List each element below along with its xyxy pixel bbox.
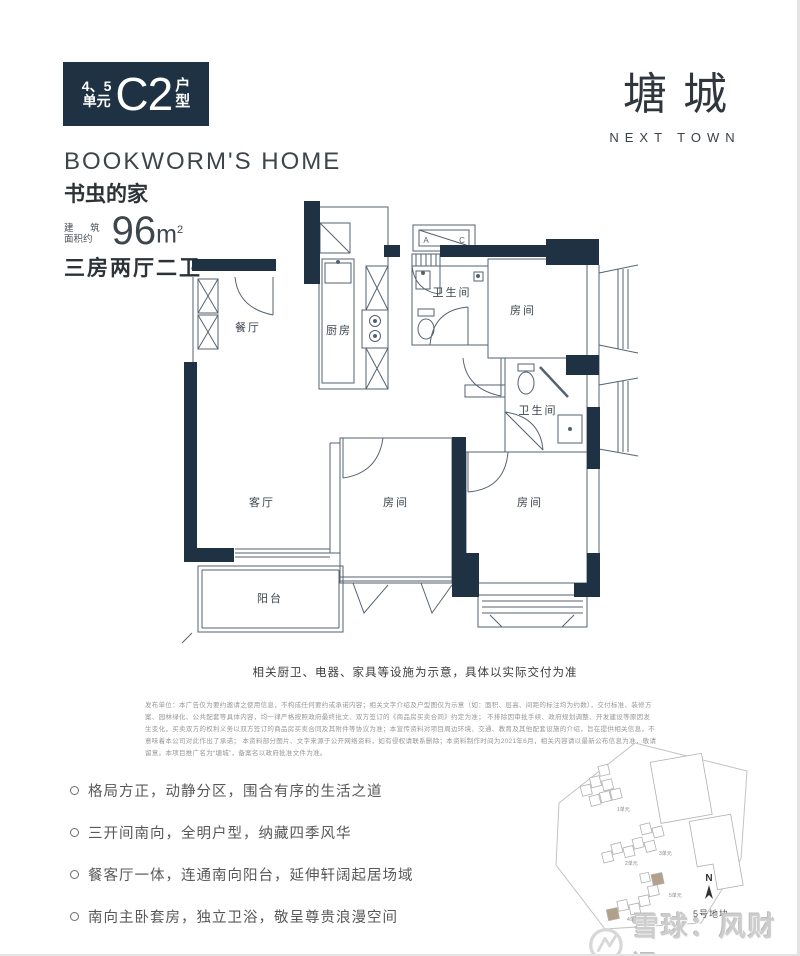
unit-label: 5单元 (669, 892, 682, 899)
snowball-logo-icon (586, 921, 626, 956)
plan-walls (184, 201, 600, 597)
area-label-1: 建 筑 (64, 223, 107, 234)
feature-item: 餐客厅一体，连通南向阳台，延伸轩阔起居场域 (70, 864, 414, 885)
room-label-balcony: 阳台 (257, 591, 283, 605)
feature-item: 三开间南向，全明户型，纳藏四季风华 (70, 822, 414, 843)
unit-number: 4、5 单元 (82, 79, 112, 109)
plan-type-bottom: 型 (175, 94, 190, 110)
ac-label-c: C (459, 236, 465, 245)
unit-label: 1单元 (617, 806, 630, 813)
north-label: N (705, 873, 712, 884)
plan-type-top: 户 (175, 78, 190, 94)
plan-caption: 相关厨卫、电器、家具等设施为示意，具体以实际交付为准 (170, 664, 660, 680)
area-label-2: 面积约 (64, 234, 107, 245)
brand-logo: 塘城 NEXT TOWN (580, 58, 770, 145)
feature-item: 格局方正，动静分区，围合有序的生活之道 (70, 780, 414, 801)
bullet-circle-icon (70, 912, 79, 921)
feature-text: 三开间南向，全明户型，纳藏四季风华 (88, 822, 352, 843)
plan-type-chars: 户 型 (175, 78, 190, 110)
headline-cn: 书虫的家 (64, 178, 148, 208)
bullet-circle-icon (70, 870, 79, 879)
room-label-dining: 餐厅 (235, 320, 261, 334)
room-label-kitchen: 厨房 (326, 324, 352, 337)
unit-number-top: 4、5 (82, 79, 112, 94)
north-arrow-icon (705, 885, 713, 899)
brand-name-cn: 塘城 (580, 58, 770, 122)
area-block: 建 筑 面积约 96 m2 (64, 213, 183, 249)
feature-item: 南向主卧套房，独立卫浴，敬呈尊贵浪漫空间 (70, 906, 414, 927)
feature-text: 南向主卧套房，独立卫浴，敬呈尊贵浪漫空间 (88, 906, 398, 927)
room-label-room1: 房间 (510, 304, 536, 317)
watermark-text: 雪球：风财讯 (632, 905, 797, 956)
feature-text: 餐客厅一体，连通南向阳台，延伸轩阔起居场域 (88, 864, 414, 885)
brochure-page: 4、5 单元 C2 户 型 塘城 NEXT TOWN BOOKWORM'S HO… (0, 0, 800, 956)
room-label-room3: 房间 (517, 496, 543, 509)
watermark: 雪球：风财讯 (586, 905, 797, 956)
feature-text: 格局方正，动静分区，围合有序的生活之道 (88, 780, 383, 801)
highlighted-unit (651, 873, 664, 886)
floorplan-drawing: 餐厅 厨房 卫生间 房间 卫生间 客厅 房间 房间 阳台 A C (178, 193, 668, 668)
room-label-bath2: 卫生间 (519, 403, 558, 417)
unit-number-bottom: 单元 (83, 94, 111, 109)
area-value: 96 (112, 213, 157, 249)
bullet-circle-icon (70, 786, 79, 795)
room-label-living: 客厅 (249, 495, 275, 509)
room-label-room2: 房间 (383, 496, 409, 509)
room-label-bath1: 卫生间 (433, 285, 472, 299)
feature-list: 格局方正，动静分区，围合有序的生活之道 三开间南向，全明户型，纳藏四季风华 餐客… (70, 780, 414, 948)
plan-code: C2 (115, 71, 172, 117)
brand-name-en: NEXT TOWN (580, 130, 770, 145)
unit-label: 3单元 (659, 850, 672, 857)
ac-label-a: A (423, 236, 429, 245)
unit-label: 2单元 (625, 860, 638, 867)
bullet-circle-icon (70, 828, 79, 837)
area-label: 建 筑 面积约 (64, 223, 107, 245)
unit-badge: 4、5 单元 C2 户 型 (63, 62, 209, 126)
headline-en: BOOKWORM'S HOME (64, 148, 341, 176)
